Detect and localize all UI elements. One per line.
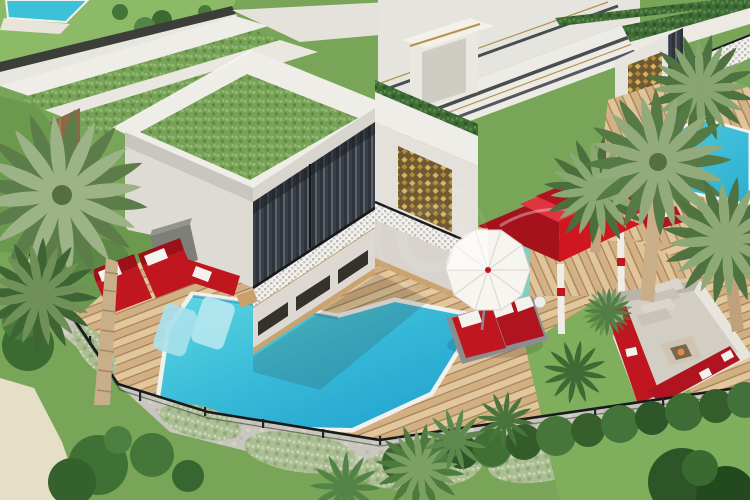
- gazebo-table: [534, 296, 546, 308]
- architectural-render: [0, 0, 750, 500]
- villa-scene-canvas: [0, 0, 750, 500]
- gazebo-post: [557, 264, 565, 334]
- bush: [130, 433, 174, 477]
